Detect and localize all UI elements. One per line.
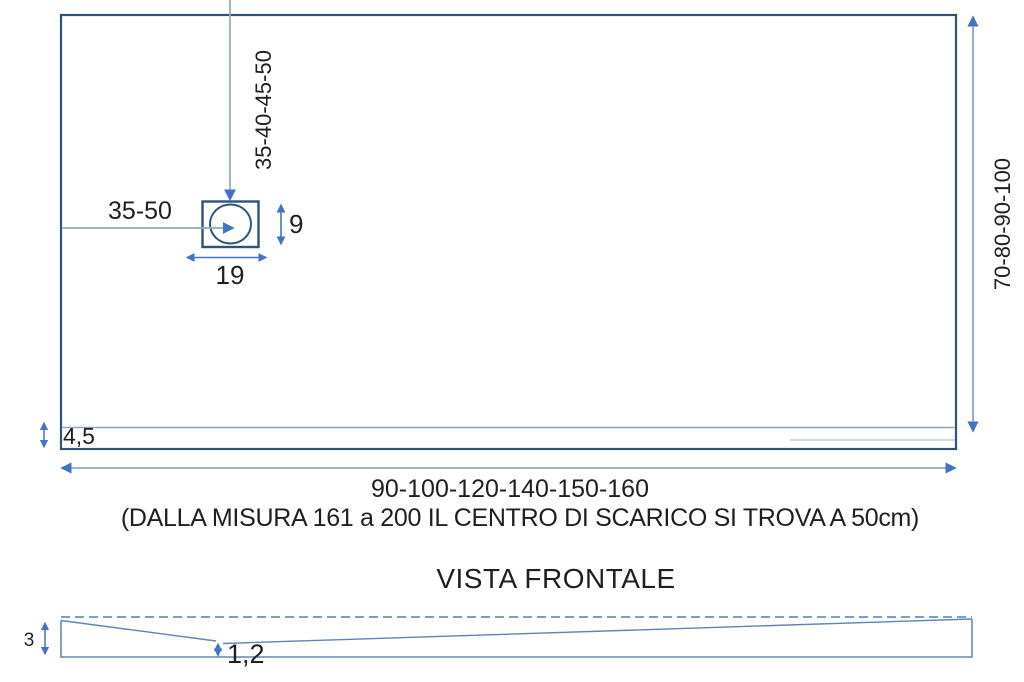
front-view-right-slope-line [223,619,972,644]
tray-width-label: 90-100-120-140-150-160 [371,475,649,503]
technical-drawing-page: 35-50 35-40-45-50 9 19 70-80-90-100 4,5 … [0,0,1024,682]
border-thickness-label: 4,5 [63,423,95,449]
drain-width-label: 19 [216,260,245,290]
edge-height-label: 3 [24,630,35,651]
shower-tray-dimension-drawing: 35-50 35-40-45-50 9 19 70-80-90-100 4,5 … [0,0,1024,682]
drain-vertical-offset-label: 35-40-45-50 [251,50,276,170]
tray-depth-label: 70-80-90-100 [990,158,1015,290]
drain-height-label: 9 [289,209,303,239]
min-thickness-label: 1,2 [227,639,265,669]
drain-position-note: (DALLA MISURA 161 a 200 IL CENTRO DI SCA… [121,504,919,532]
front-view-title: VISTA FRONTALE [436,563,675,594]
drain-horizontal-offset-label: 35-50 [108,197,172,225]
front-view-left-slope-line [61,621,216,642]
tray-top-view-outline [61,15,956,449]
